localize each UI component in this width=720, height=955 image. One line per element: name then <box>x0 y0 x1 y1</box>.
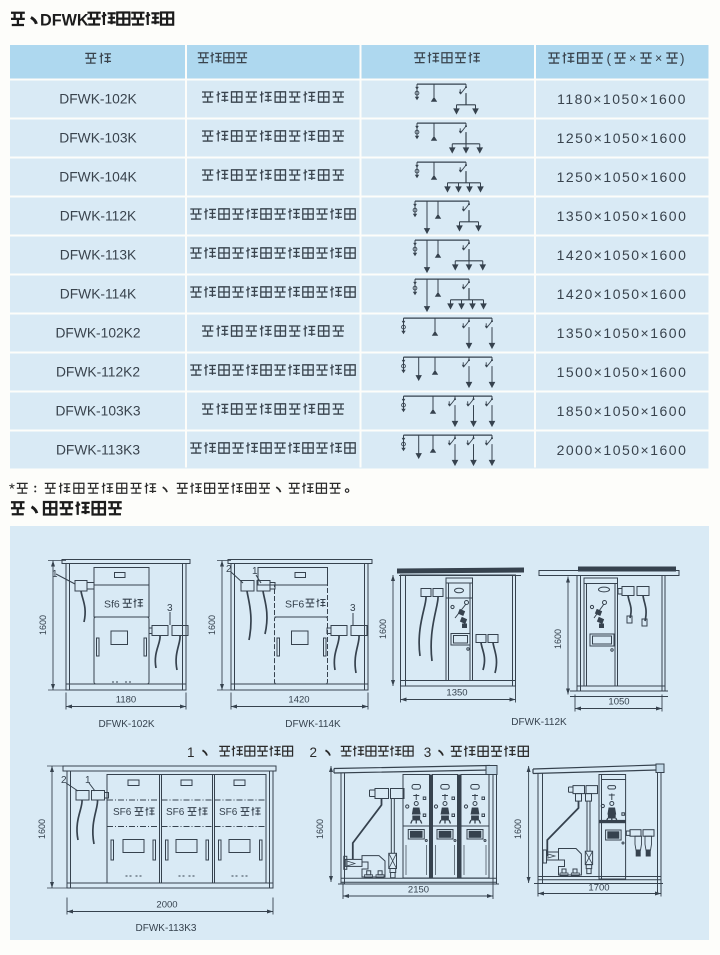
svg-text:1600: 1600 <box>315 819 325 839</box>
svg-text:1420×1050×1600: 1420×1050×1600 <box>557 286 688 302</box>
svg-text:×: × <box>629 52 636 66</box>
svg-text:1600: 1600 <box>207 615 217 635</box>
svg-text:DFWK-102K2: DFWK-102K2 <box>55 326 140 341</box>
svg-text:DFWK-114K: DFWK-114K <box>60 287 137 302</box>
svg-text:2000×1050×1600: 2000×1050×1600 <box>557 442 688 458</box>
svg-text:SF6: SF6 <box>285 599 304 611</box>
svg-text:DFWK-113K: DFWK-113K <box>60 248 137 263</box>
svg-text:1500×1050×1600: 1500×1050×1600 <box>557 364 688 380</box>
svg-text:1050: 1050 <box>608 697 629 708</box>
svg-text:3: 3 <box>167 603 173 614</box>
svg-text:2: 2 <box>310 745 318 760</box>
svg-text:×: × <box>655 52 662 66</box>
svg-text:(: ( <box>607 51 612 66</box>
svg-text:1600: 1600 <box>38 615 48 635</box>
svg-text:DFWK-113K3: DFWK-113K3 <box>56 443 140 458</box>
svg-text:1180×1050×1600: 1180×1050×1600 <box>557 91 687 107</box>
svg-text:DFWK-113K3: DFWK-113K3 <box>136 923 197 934</box>
svg-text:DFWK: DFWK <box>40 12 89 30</box>
svg-text:1600: 1600 <box>378 619 388 639</box>
svg-text:1700: 1700 <box>588 883 609 894</box>
svg-text:DFWK-114K: DFWK-114K <box>285 719 341 730</box>
svg-text:1420×1050×1600: 1420×1050×1600 <box>557 247 688 263</box>
svg-text:1250×1050×1600: 1250×1050×1600 <box>557 169 688 185</box>
svg-text:): ) <box>680 51 685 66</box>
svg-text:DFWK-103K3: DFWK-103K3 <box>55 404 140 419</box>
svg-text:1600: 1600 <box>553 629 563 649</box>
svg-text:SF6: SF6 <box>166 807 185 818</box>
svg-text:1350×1050×1600: 1350×1050×1600 <box>557 208 688 224</box>
svg-text:DFWK-112K: DFWK-112K <box>511 717 567 728</box>
svg-text:1350×1050×1600: 1350×1050×1600 <box>557 325 688 341</box>
svg-text:*: * <box>9 481 15 498</box>
svg-text:SF6: SF6 <box>219 807 238 818</box>
svg-text:1: 1 <box>85 775 91 786</box>
svg-text:1: 1 <box>252 566 258 577</box>
svg-text:1250×1050×1600: 1250×1050×1600 <box>557 130 688 146</box>
svg-text:1600: 1600 <box>513 819 523 839</box>
svg-text:Sf6: Sf6 <box>104 599 120 611</box>
svg-text:2: 2 <box>61 775 67 786</box>
svg-text:1600: 1600 <box>37 819 47 839</box>
svg-text:3: 3 <box>424 745 432 760</box>
svg-text:DFWK-112K2: DFWK-112K2 <box>56 365 140 380</box>
svg-text:3: 3 <box>350 603 356 614</box>
svg-text:SF6: SF6 <box>113 807 132 818</box>
svg-text:DFWK-112K: DFWK-112K <box>60 209 137 224</box>
svg-text:1: 1 <box>187 745 195 760</box>
svg-text:2150: 2150 <box>408 885 429 896</box>
svg-text:1420: 1420 <box>288 695 309 706</box>
svg-text:1850×1050×1600: 1850×1050×1600 <box>557 403 688 419</box>
svg-text:1180: 1180 <box>116 695 136 706</box>
svg-text:2: 2 <box>226 564 232 575</box>
svg-text:DFWK-103K: DFWK-103K <box>59 131 137 146</box>
svg-text:DFWK-102K: DFWK-102K <box>59 92 137 107</box>
svg-text:1350: 1350 <box>446 688 467 699</box>
svg-text:DFWK-102K: DFWK-102K <box>98 719 154 730</box>
svg-text:2000: 2000 <box>156 900 177 911</box>
svg-text:DFWK-104K: DFWK-104K <box>59 170 137 185</box>
